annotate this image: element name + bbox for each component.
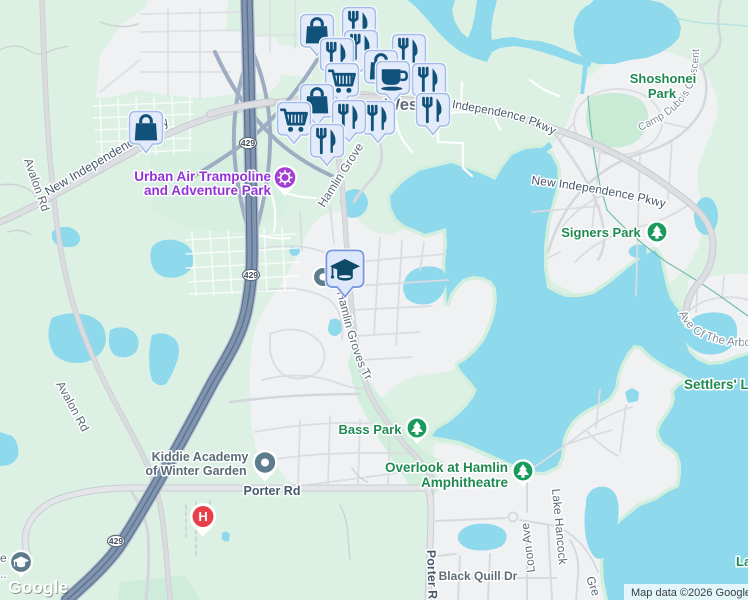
svg-text:Signers Park: Signers Park [561,225,641,240]
svg-text:Urban Air Trampoline: Urban Air Trampoline [134,169,271,184]
svg-text:Overlook at Hamlin: Overlook at Hamlin [385,460,508,475]
svg-text:Google: Google [8,577,69,597]
svg-text:Shoshonei: Shoshonei [630,71,696,86]
svg-text:La: La [736,554,748,569]
svg-text:..: .. [0,567,7,581]
svg-text:and Adventure Park: and Adventure Park [144,183,272,198]
svg-text:Black Quill Dr: Black Quill Dr [439,569,518,583]
svg-text:Kiddie Academy: Kiddie Academy [152,450,249,464]
svg-text:of Winter Garden: of Winter Garden [145,464,246,478]
svg-text:Map data ©2026 Google: Map data ©2026 Google [631,587,748,599]
svg-text:Bass Park: Bass Park [339,422,403,437]
svg-text:Settlers' La: Settlers' La [684,377,748,392]
svg-text:Amphitheatre: Amphitheatre [421,475,509,490]
svg-text:Porter R: Porter R [424,550,440,600]
svg-text:Porter Rd: Porter Rd [244,484,301,498]
svg-text:H: H [198,509,207,524]
svg-text:e: e [0,551,7,565]
svg-text:Park: Park [648,86,677,101]
